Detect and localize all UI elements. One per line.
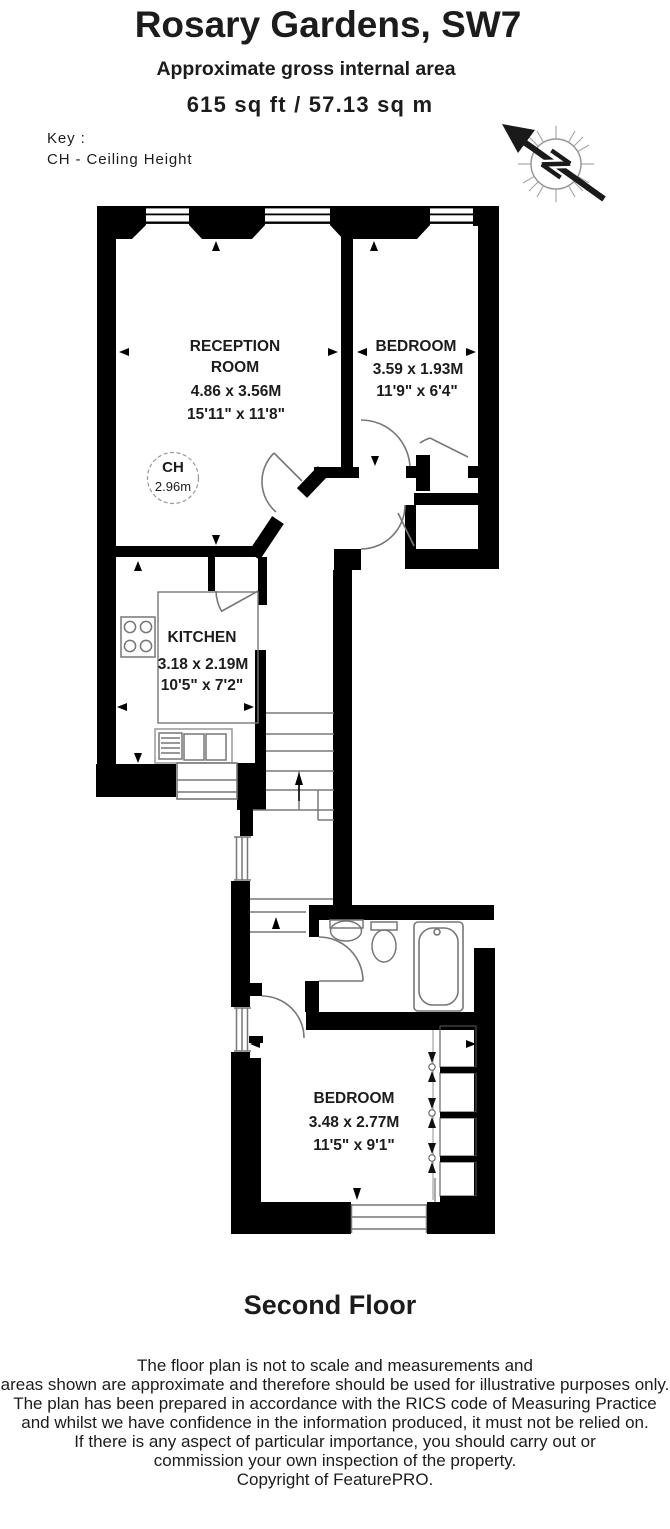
svg-text:15'11" x 11'8": 15'11" x 11'8" (187, 406, 285, 423)
svg-text:Rosary Gardens, SW7: Rosary Gardens, SW7 (135, 4, 522, 45)
svg-text:Key :: Key : (47, 130, 86, 147)
svg-text:BEDROOM: BEDROOM (376, 338, 457, 355)
svg-text:ROOM: ROOM (211, 359, 259, 376)
svg-text:11'5" x 9'1": 11'5" x 9'1" (313, 1137, 395, 1154)
svg-text:3.18 x 2.19M: 3.18 x 2.19M (158, 656, 248, 673)
svg-text:Copyright of FeaturePRO.: Copyright of FeaturePRO. (237, 1470, 434, 1489)
svg-text:Second Floor: Second Floor (244, 1290, 417, 1320)
svg-text:KITCHEN: KITCHEN (168, 629, 237, 646)
svg-text:CH: CH (162, 459, 184, 476)
svg-text:and whilst we have confidence: and whilst we have confidence in the inf… (21, 1413, 648, 1432)
svg-text:10'5" x 7'2": 10'5" x 7'2" (161, 677, 243, 694)
svg-text:3.59 x 1.93M: 3.59 x 1.93M (373, 361, 463, 378)
svg-text:Approximate gross internal are: Approximate gross internal area (156, 58, 455, 80)
svg-text:If there is any aspect of part: If there is any aspect of particular imp… (74, 1432, 596, 1451)
svg-text:BEDROOM: BEDROOM (314, 1090, 395, 1107)
svg-text:The floor plan is not to scale: The floor plan is not to scale and measu… (137, 1356, 533, 1375)
svg-text:RECEPTION: RECEPTION (190, 338, 280, 355)
svg-text:4.86 x 3.56M: 4.86 x 3.56M (191, 383, 281, 400)
svg-text:CH - Ceiling Height: CH - Ceiling Height (47, 151, 192, 168)
svg-text:areas shown are approximate an: areas shown are approximate and therefor… (1, 1375, 670, 1394)
svg-text:615 sq ft / 57.13 sq m: 615 sq ft / 57.13 sq m (187, 92, 434, 117)
svg-text:11'9" x 6'4": 11'9" x 6'4" (376, 383, 458, 400)
svg-text:2.96m: 2.96m (155, 479, 191, 494)
svg-text:The plan has been prepared in: The plan has been prepared in accordance… (13, 1394, 657, 1413)
svg-text:commission your own inspection: commission your own inspection of the pr… (154, 1451, 517, 1470)
svg-text:3.48 x 2.77M: 3.48 x 2.77M (309, 1114, 399, 1131)
